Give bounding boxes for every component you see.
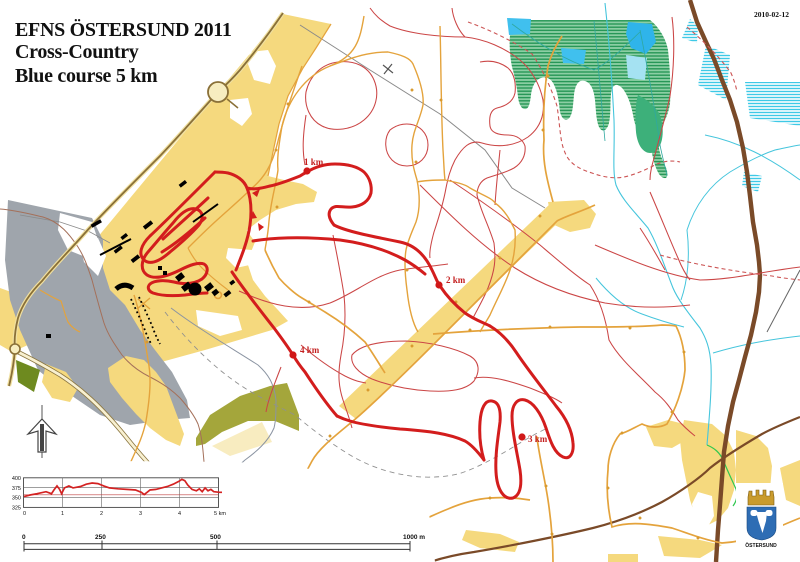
svg-text:500: 500 (210, 534, 221, 541)
svg-text:0: 0 (23, 511, 26, 517)
svg-text:325: 325 (12, 505, 21, 511)
svg-text:0: 0 (22, 534, 26, 541)
svg-text:400: 400 (12, 476, 21, 482)
svg-text:375: 375 (12, 486, 21, 492)
svg-text:EFNS ÖSTERSUND 2011: EFNS ÖSTERSUND 2011 (15, 18, 232, 41)
svg-text:1: 1 (61, 511, 64, 517)
svg-text:2 km: 2 km (446, 275, 466, 285)
svg-text:250: 250 (95, 534, 106, 541)
svg-text:Blue course 5 km: Blue course 5 km (15, 65, 158, 87)
svg-text:3 km: 3 km (528, 434, 548, 444)
svg-text:4 km: 4 km (300, 345, 320, 355)
svg-text:4: 4 (178, 511, 181, 517)
svg-text:2010-02-12: 2010-02-12 (754, 10, 789, 19)
svg-text:1000 m: 1000 m (403, 534, 425, 541)
svg-text:2: 2 (100, 511, 103, 517)
svg-text:350: 350 (12, 496, 21, 502)
svg-text:1 km: 1 km (304, 157, 324, 167)
svg-text:ÖSTERSUND: ÖSTERSUND (745, 542, 777, 549)
svg-text:3: 3 (139, 511, 142, 517)
svg-text:5 km: 5 km (214, 511, 226, 517)
svg-text:Cross-Country: Cross-Country (15, 41, 139, 63)
